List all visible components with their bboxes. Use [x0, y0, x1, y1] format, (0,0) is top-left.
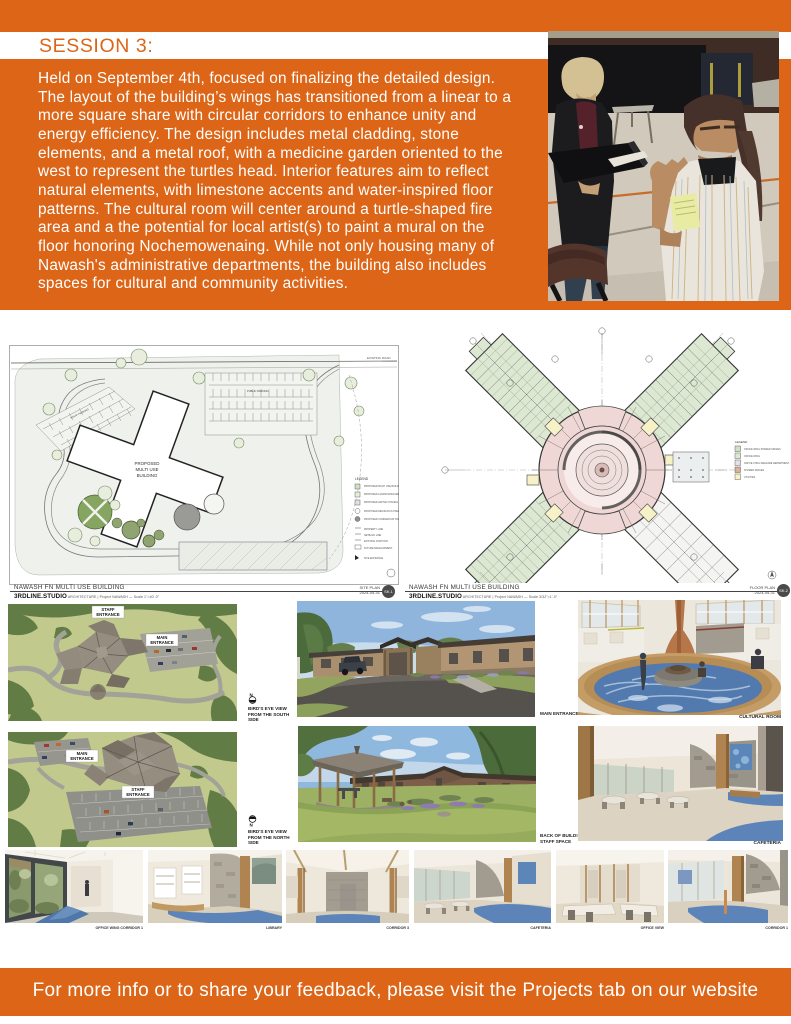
svg-text:FUTURE DEVELOPMENT: FUTURE DEVELOPMENT	[364, 547, 393, 550]
svg-text:ENTRANCE: ENTRANCE	[150, 640, 173, 645]
svg-text:BUILDING: BUILDING	[137, 473, 158, 478]
svg-text:PROPOSED DECIDUOUS TREE: PROPOSED DECIDUOUS TREE	[364, 510, 399, 513]
svg-text:PROPOSED CONIFEROUS TREE: PROPOSED CONIFEROUS TREE	[364, 518, 399, 521]
svg-text:LEGEND: LEGEND	[355, 477, 369, 481]
svg-text:PROPOSED LANDSCAPED AREA: PROPOSED LANDSCAPED AREA	[364, 493, 399, 496]
svg-text:NATIVE CHILD WELFARE DEPARTMEN: NATIVE CHILD WELFARE DEPARTMENT	[744, 462, 790, 465]
svg-text:ENTRANCE: ENTRANCE	[96, 612, 119, 617]
svg-text:UTILITIES: UTILITIES	[744, 476, 756, 479]
svg-text:SHARED SPACES: SHARED SPACES	[744, 469, 765, 472]
svg-text:SITE ENTRANCE: SITE ENTRANCE	[364, 557, 384, 560]
svg-text:PROPOSED: PROPOSED	[135, 461, 160, 466]
svg-text:PROPOSED ASPHALT PAVING: PROPOSED ASPHALT PAVING	[364, 501, 398, 504]
svg-text:ENTRANCE: ENTRANCE	[70, 756, 93, 761]
svg-text:N: N	[250, 823, 253, 828]
svg-text:SETBACK LINE: SETBACK LINE	[364, 534, 382, 537]
svg-text:PUBLIC PARKING: PUBLIC PARKING	[247, 389, 269, 393]
svg-text:PROPERTY LINE: PROPERTY LINE	[364, 528, 383, 531]
svg-text:EXISTING CONTOUR: EXISTING CONTOUR	[364, 540, 388, 543]
svg-text:LEGEND: LEGEND	[735, 440, 748, 444]
svg-text:OFFICE WING SHARED SPACES: OFFICE WING SHARED SPACES	[744, 448, 781, 451]
svg-text:MULTI USE: MULTI USE	[135, 467, 158, 472]
svg-text:PROPOSED MULTI USE BUILDING: PROPOSED MULTI USE BUILDING	[364, 485, 399, 488]
svg-text:OFFICE WING: OFFICE WING	[744, 455, 760, 458]
svg-text:ENTRANCE: ENTRANCE	[126, 792, 149, 797]
svg-text:EXISTING ROAD: EXISTING ROAD	[367, 356, 391, 360]
